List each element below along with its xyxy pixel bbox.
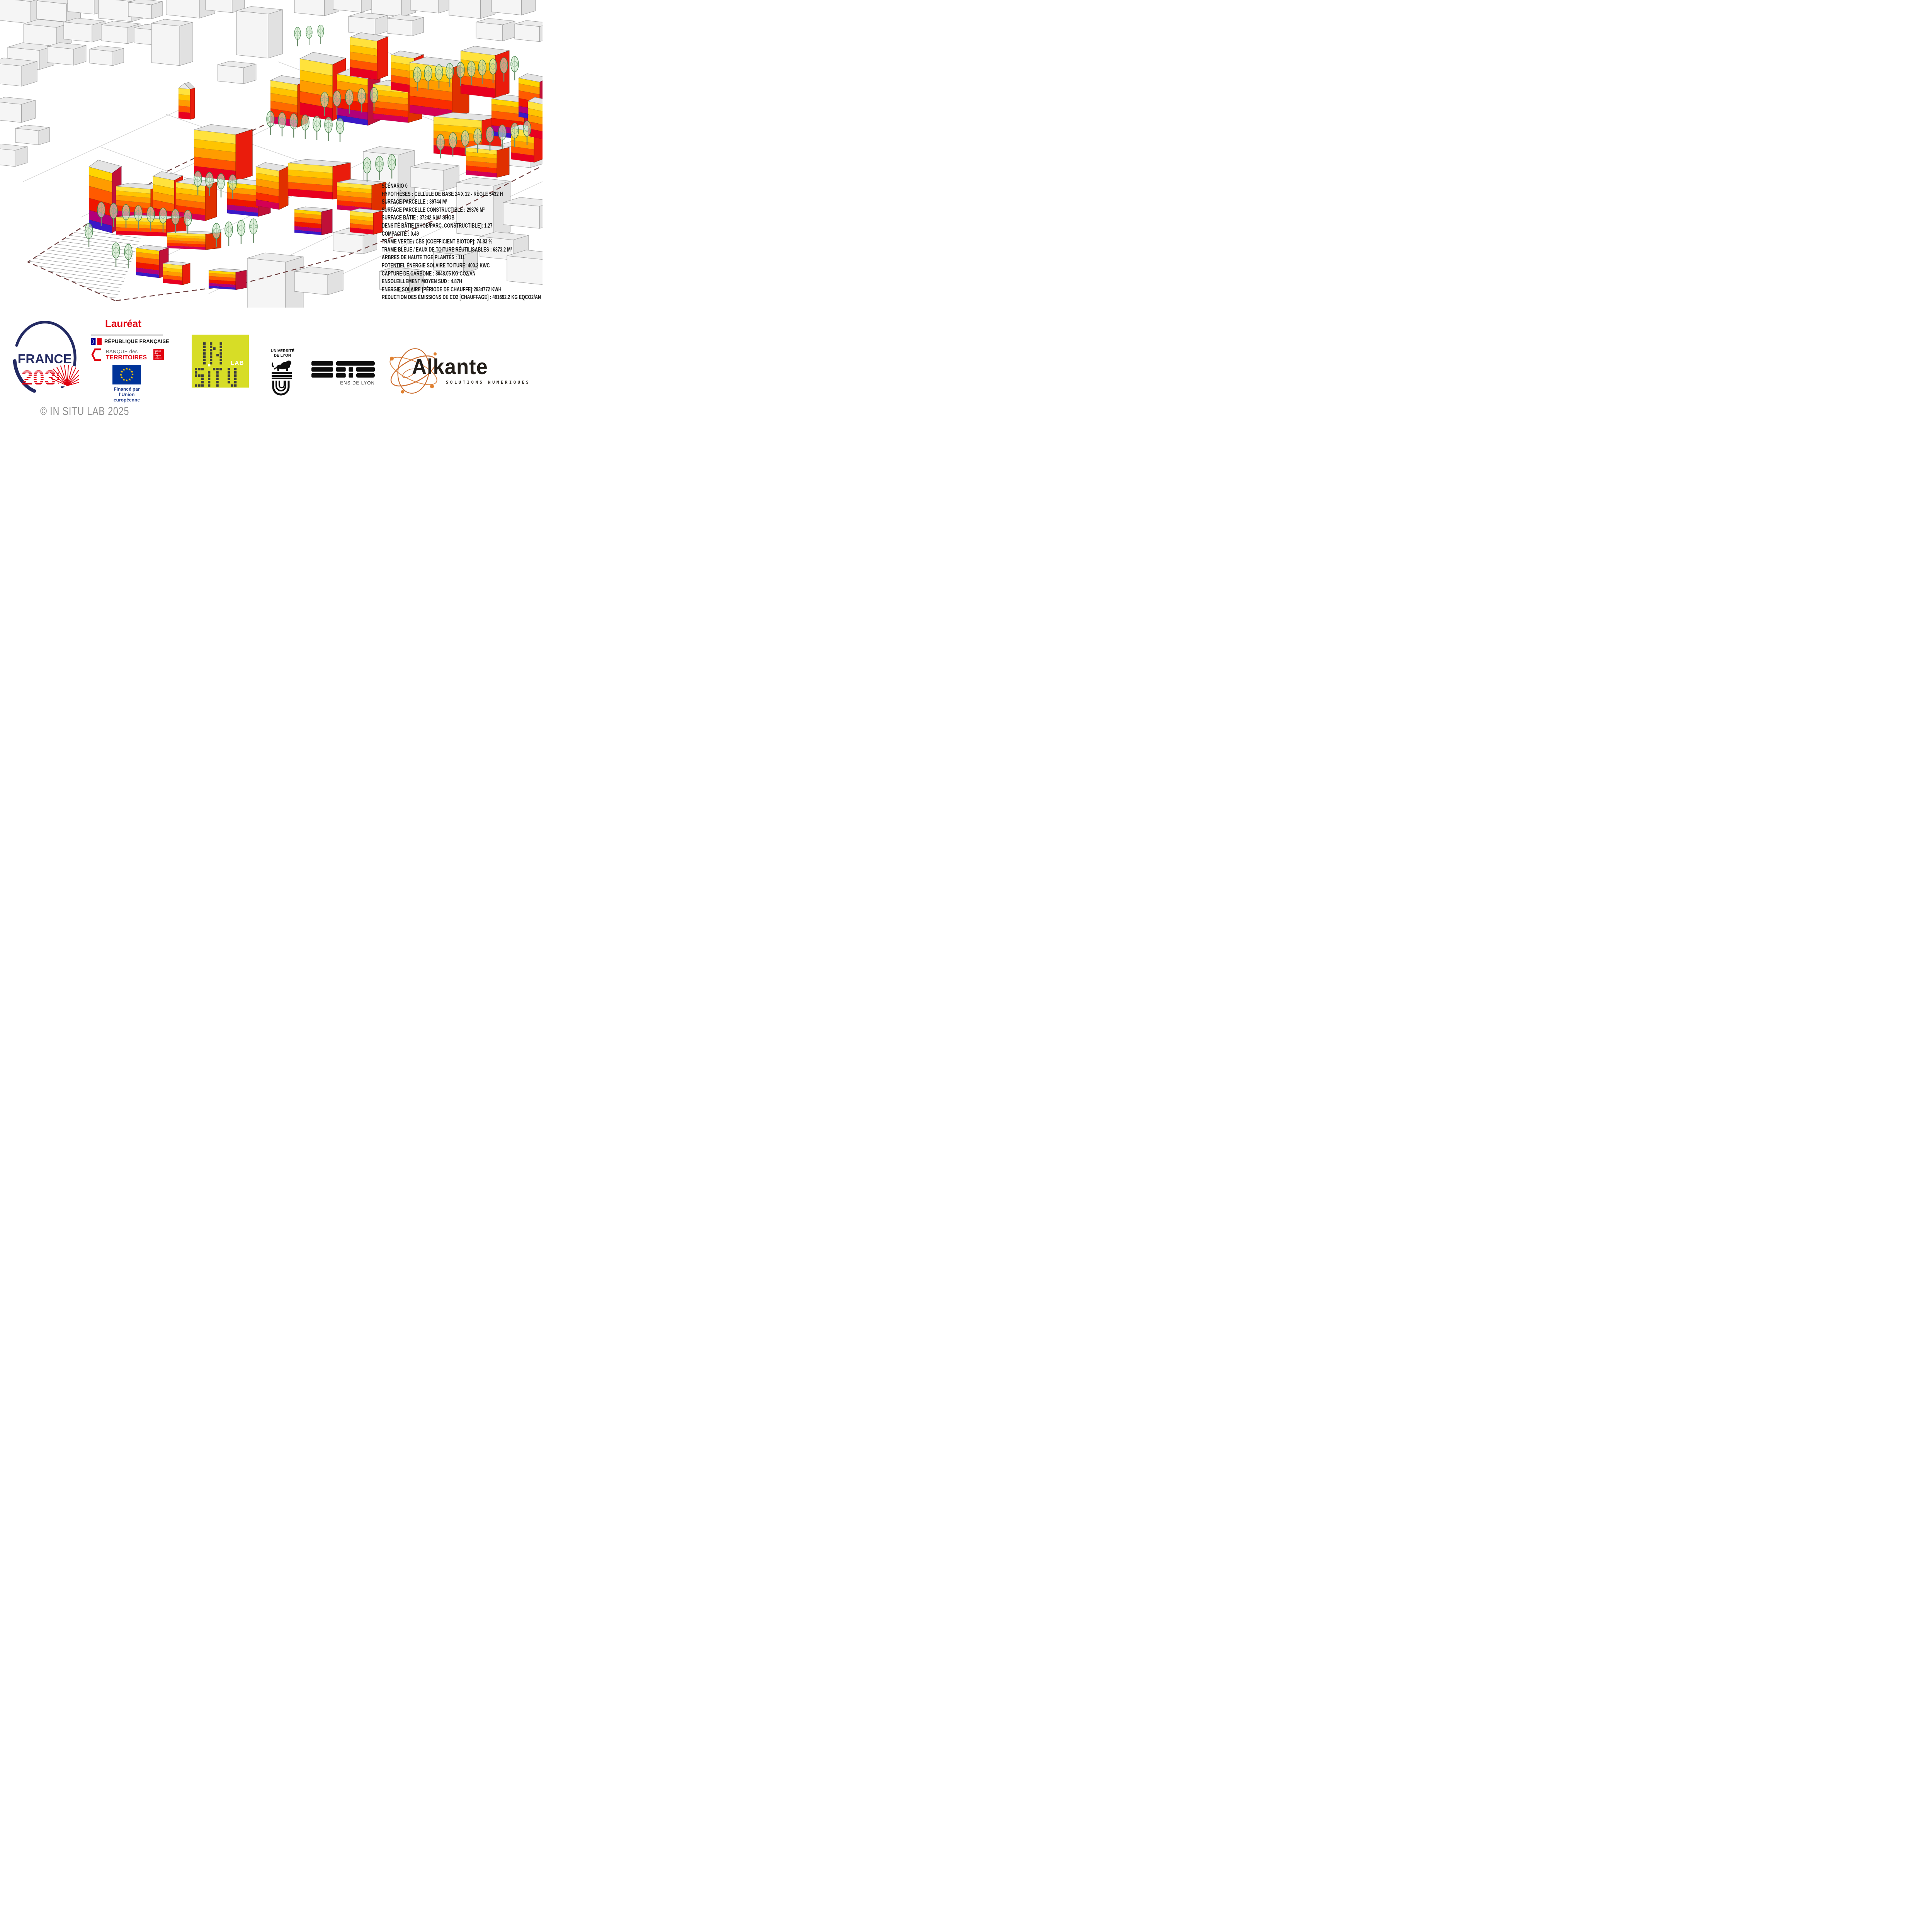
gabled-tower	[179, 82, 195, 119]
stat-line: SCÉNARIO 0	[382, 182, 541, 190]
territoires-label: TERRITOIRES	[106, 355, 147, 361]
stat-line: TRAME BLEUE / EAUX DE TOITURE RÉUTILISAB…	[382, 246, 541, 254]
stat-line: CAPTURE DE CARBONE : 8048.05 KG CO2/AN	[382, 270, 541, 278]
stat-line: ENERGIE SOLAIRE [PÉRIODE DE CHAUFFE]:293…	[382, 286, 541, 294]
stat-line: COMPACITÉ : 0.49	[382, 230, 541, 238]
france-2030-logo: FRANCE 2030	[11, 318, 79, 397]
caisse-des-depots-badge: Caisse des Dépôts GROUPE	[153, 349, 164, 360]
french-flag-icon	[91, 338, 102, 345]
alkante-logo: Alkante SOLUTIONS NUMÉRIQUES	[386, 340, 540, 406]
copyright-label: © IN SITU LAB 2025	[40, 405, 129, 418]
udl-line1: UNIVERSITÉ	[271, 349, 294, 353]
stat-line: HYPOTHÈSES : CELLULE DE BASE 24 X 12 - R…	[382, 190, 541, 199]
divider-line	[302, 351, 302, 396]
eu-funding-line2: l’Union européenne	[112, 392, 141, 403]
alkante-wordmark: Alkante	[412, 354, 488, 379]
stat-line: SURFACE PARCELLE : 39744 M²	[382, 198, 541, 206]
eu-flag-icon	[112, 365, 141, 384]
scenario-stats-block: SCÉNARIO 0 HYPOTHÈSES : CELLULE DE BASE …	[382, 182, 541, 302]
banque-des-label: BANQUE des	[106, 349, 147, 354]
partner-logo-strip: FRANCE 2030 Lauréat	[0, 308, 543, 420]
poster-page: SCÉNARIO 0 HYPOTHÈSES : CELLULE DE BASE …	[0, 0, 543, 420]
ens-de-lyon-logo: ENS DE LYON	[311, 361, 375, 386]
republique-francaise-label: RÉPUBLIQUE FRANÇAISE	[104, 338, 169, 344]
stat-line: POTENTIEL ÉNERGIE SOLAIRE TOITURE: 400.2…	[382, 262, 541, 270]
universite-de-lyon-logo: UNIVERSITÉ DE LYON	[270, 349, 295, 398]
lion-and-u-icon	[270, 359, 293, 398]
alkante-tagline: SOLUTIONS NUMÉRIQUES	[446, 380, 530, 385]
hexagon-icon	[91, 348, 104, 362]
eu-funding-line1: Financé par	[112, 386, 141, 392]
caisse-line: GROUPE	[155, 357, 164, 359]
stat-line: SURFACE PARCELLE CONSTRUCTIBLE : 29376 M…	[382, 206, 541, 214]
divider-line	[91, 335, 163, 335]
republique-francaise-block: RÉPUBLIQUE FRANÇAISE	[91, 338, 172, 345]
eu-funding-block: Financé par l’Union européenne	[112, 365, 141, 403]
stat-line: RÉDUCTION DES ÉMISSIONS DE CO2 [CHAUFFAG…	[382, 294, 541, 302]
stat-line: ENSOLEILLEMENT MOYEN SUD : 4.87H	[382, 278, 541, 286]
france-2030-word1: FRANCE	[18, 352, 72, 366]
caisse-line: des Dépôts	[155, 352, 164, 357]
laureat-label: Lauréat	[105, 318, 141, 330]
ens-de-lyon-label: ENS DE LYON	[311, 381, 375, 386]
stat-line: ARBRES DE HAUTE TIGE PLANTÉS : 111	[382, 254, 541, 262]
banque-des-territoires-block: BANQUE des TERRITOIRES Caisse des Dépôts…	[91, 348, 164, 362]
stat-line: SURFACE BÂTIE : 37242.6 M² SHOB	[382, 214, 541, 222]
lab-label: LAB	[231, 360, 244, 366]
divider-line	[151, 348, 151, 362]
white-pixel-dot	[208, 364, 210, 366]
ens-bars-icon	[311, 361, 375, 378]
udl-line2: DE LYON	[271, 353, 294, 358]
stat-line: DENSITÉ BÂTIE [SHOB/PARC. CONSTRUCTIBLE]…	[382, 222, 541, 230]
stat-line: TRAME VERTE / CBS [COEFFICIENT BIOTOP]: …	[382, 238, 541, 246]
in-situ-lab-logo: LAB	[192, 335, 249, 388]
